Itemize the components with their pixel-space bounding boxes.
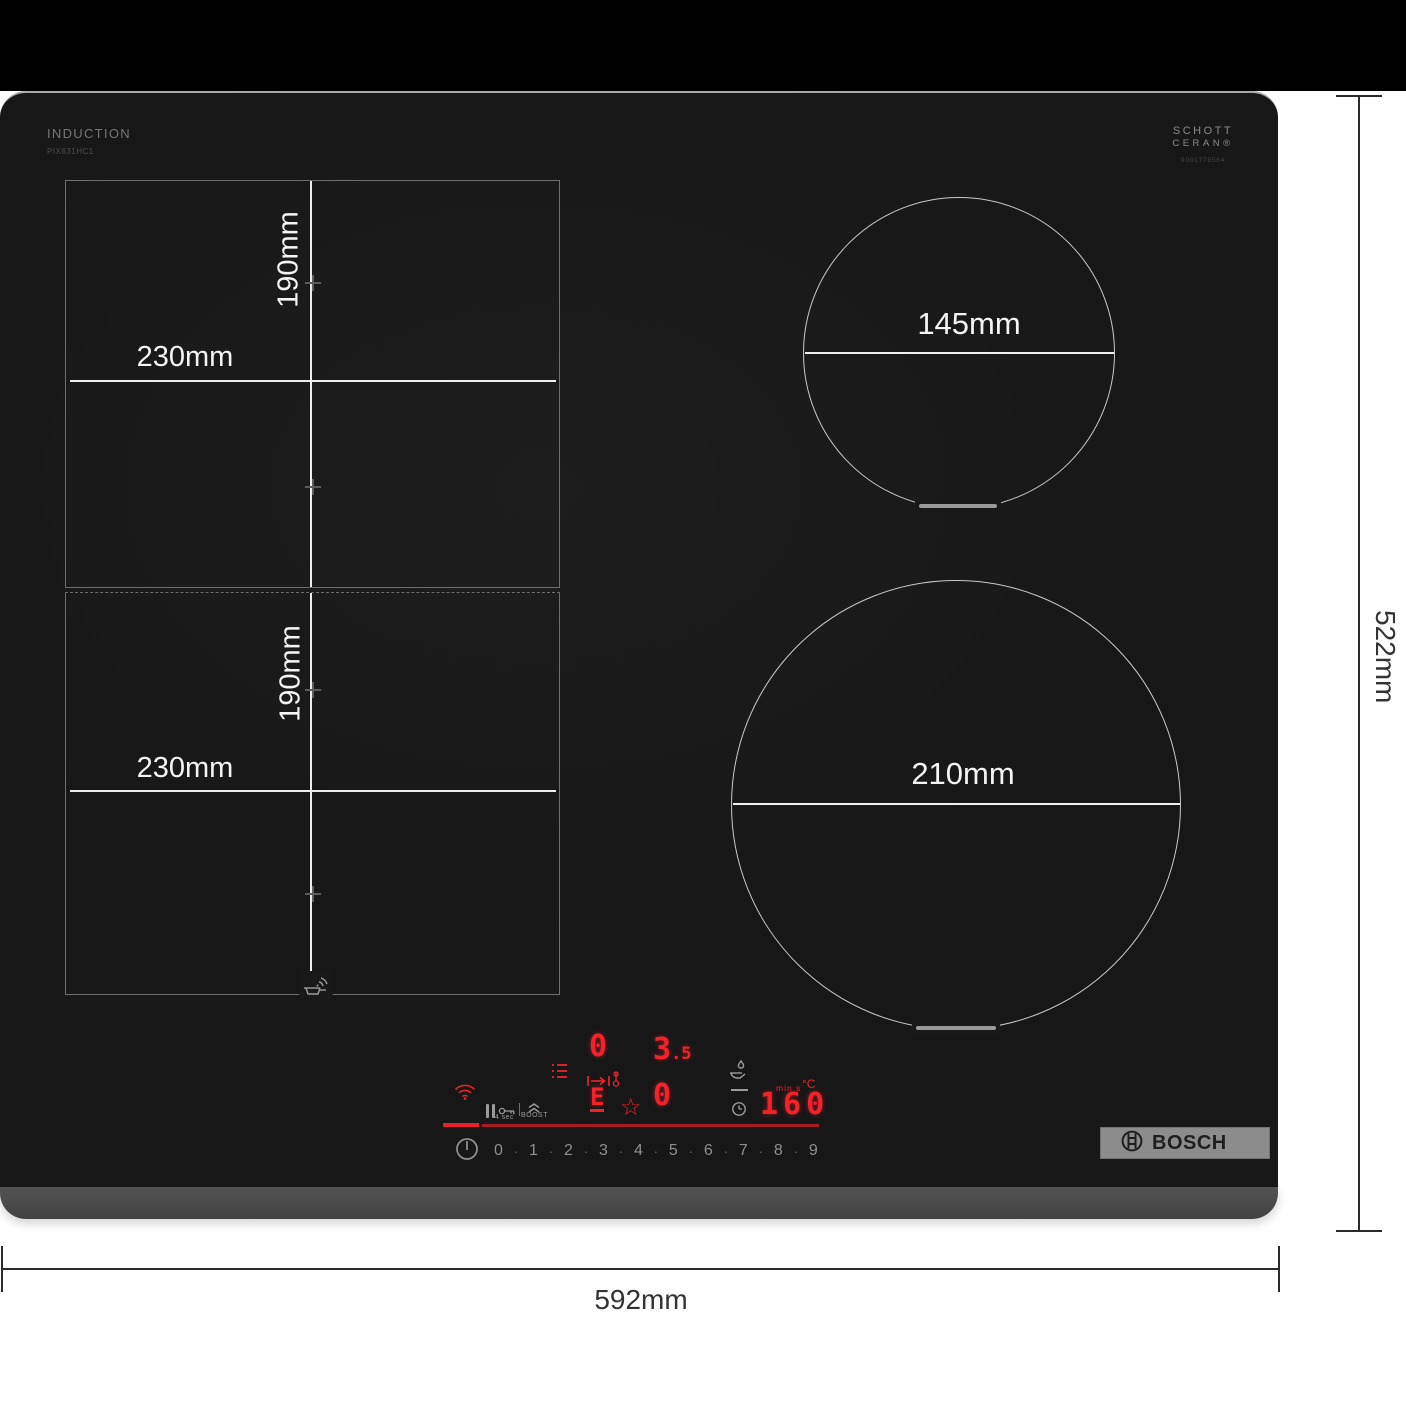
- zone-center-marker: [305, 479, 321, 495]
- small-circle-diameter-line: [805, 352, 1114, 354]
- power-scale-dot: ·: [759, 1143, 764, 1159]
- power-scale-dot: ·: [619, 1143, 624, 1159]
- star-icon: ☆: [620, 1096, 642, 1120]
- flex-bottom-width-line: [70, 790, 556, 792]
- power-scale-dot: ·: [514, 1143, 519, 1159]
- clock-icon: [731, 1101, 747, 1122]
- power-slider-track: [482, 1124, 819, 1127]
- panel-divider: [519, 1103, 520, 1116]
- zone-display-mid: 0: [653, 1081, 671, 1111]
- flex-segment-underline: [590, 1109, 604, 1112]
- schott-ceran-line1: SCHOTT: [1168, 125, 1238, 137]
- flex-bottom-depth-label: 190mm: [275, 619, 308, 729]
- wifi-icon: [453, 1081, 477, 1106]
- power-level-3: 3: [599, 1142, 608, 1160]
- bosch-logo: BOSCH: [1100, 1127, 1270, 1159]
- power-display-main: 3: [653, 1032, 671, 1067]
- power-level-6: 6: [704, 1142, 713, 1160]
- hob-front-bezel: [0, 1186, 1278, 1219]
- power-slider-active-segment: [443, 1123, 479, 1127]
- power-scale-dot: ·: [549, 1143, 554, 1159]
- flex-zone-top: [65, 180, 560, 588]
- power-scale-dot: ·: [793, 1143, 798, 1159]
- large-circle-diameter-label: 210mm: [892, 756, 1034, 792]
- zone-center-marker: [305, 275, 321, 291]
- overall-width-label: 592mm: [561, 1284, 721, 1316]
- power-level-4: 4: [634, 1142, 643, 1160]
- panel-separator-line: [731, 1089, 748, 1091]
- flex-segment-display: E: [590, 1085, 604, 1109]
- large-circle-pan-mark: [916, 1026, 996, 1030]
- boost-label: BOOST: [521, 1112, 548, 1119]
- depth-dimension-tick-bottom: [1336, 1230, 1382, 1232]
- small-circle-diameter-label: 145mm: [898, 306, 1040, 342]
- power-scale-row: 0·1·2·3·4·5·6·7·8·9: [494, 1141, 818, 1161]
- power-level-5: 5: [669, 1142, 678, 1160]
- depth-dimension-line: [1358, 96, 1360, 1232]
- large-circle-diameter-line: [733, 803, 1180, 805]
- power-level-display: 3.5: [653, 1035, 692, 1065]
- power-level-2: 2: [564, 1142, 573, 1160]
- overall-depth-label: 522mm: [1369, 610, 1401, 703]
- width-dimension-line: [2, 1268, 1279, 1270]
- flex-top-width-line: [70, 380, 556, 382]
- schott-serial-number: 9001778564: [1168, 157, 1238, 164]
- water-drop-pan-icon: [727, 1059, 751, 1088]
- power-icon: [454, 1136, 480, 1167]
- small-circle-pan-mark: [919, 504, 997, 508]
- power-display-sub: .5: [671, 1044, 691, 1064]
- zone-center-marker: [305, 682, 321, 698]
- power-level-1: 1: [529, 1142, 538, 1160]
- flex-top-width-label: 230mm: [125, 341, 245, 374]
- flex-top-depth-label: 190mm: [273, 205, 306, 315]
- depth-dimension-tick-top: [1336, 95, 1382, 97]
- pan-detection-icon: [299, 971, 333, 999]
- schott-ceran-logo: SCHOTT CERAN®: [1168, 125, 1238, 149]
- timer-display: 160: [760, 1090, 829, 1120]
- power-scale-dot: ·: [689, 1143, 694, 1159]
- zone-center-marker: [305, 886, 321, 902]
- power-scale-dot: ·: [584, 1143, 589, 1159]
- zone-display-left: 0: [589, 1032, 607, 1062]
- key-hold-label: 4 sec: [495, 1114, 514, 1121]
- bosch-wordmark: BOSCH: [1152, 1132, 1227, 1155]
- power-level-7: 7: [739, 1142, 748, 1160]
- power-scale-dot: ·: [724, 1143, 729, 1159]
- flex-zone-bottom: [65, 592, 560, 995]
- schott-ceran-line2: CERAN®: [1168, 138, 1238, 149]
- move-pan-indicator-icon: [552, 1064, 568, 1082]
- power-level-9: 9: [809, 1142, 818, 1160]
- bosch-anchor-icon: [1121, 1130, 1143, 1157]
- power-scale-dot: ·: [654, 1143, 659, 1159]
- power-level-8: 8: [774, 1142, 783, 1160]
- thermometer-icon: [612, 1070, 620, 1093]
- model-number: PIX631HC1: [47, 147, 94, 156]
- top-black-bar: [0, 0, 1406, 91]
- power-level-0: 0: [494, 1142, 503, 1160]
- cooking-zone-large-circle: [731, 580, 1181, 1030]
- flex-bottom-width-label: 230mm: [125, 752, 245, 785]
- induction-label: INDUCTION: [47, 126, 131, 141]
- width-dimension-tick-right: [1278, 1246, 1280, 1292]
- flex-top-center-line: [310, 181, 312, 587]
- width-dimension-tick-left: [1, 1246, 3, 1292]
